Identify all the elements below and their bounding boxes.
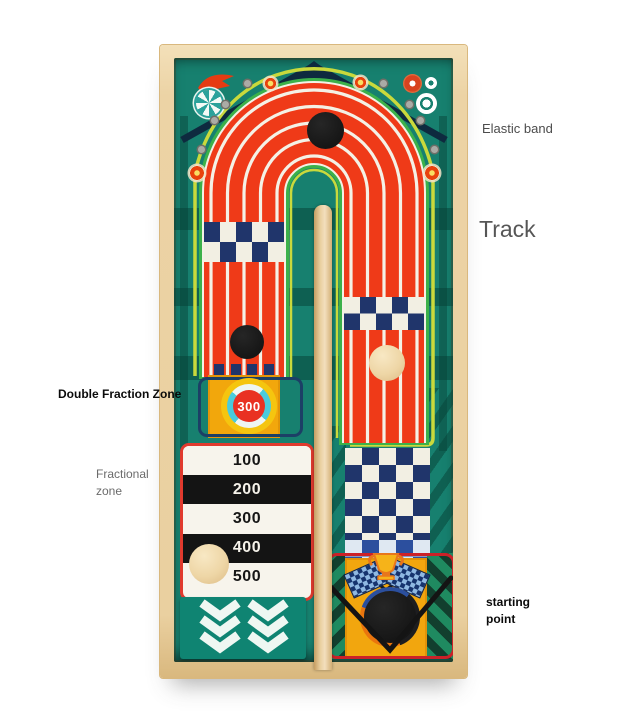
ball-hole	[230, 325, 264, 359]
fraction-row: 200	[183, 475, 311, 504]
peg-dot	[222, 101, 229, 108]
peg-dot	[431, 146, 438, 153]
fraction-value: 300	[233, 510, 261, 528]
label-text: starting	[486, 594, 530, 611]
label-text: Fractional	[96, 466, 149, 483]
peg-dot	[198, 146, 205, 153]
candy-icon	[424, 165, 440, 181]
track-checker-band	[204, 222, 284, 262]
wood-hole	[369, 345, 405, 381]
flower-icon	[403, 74, 422, 93]
peg-dot	[417, 117, 424, 124]
candy-icon	[264, 77, 277, 90]
label-starting-point: starting point	[486, 594, 530, 628]
label-double-fraction-zone: Double Fraction Zone	[58, 386, 181, 403]
fraction-value: 500	[233, 568, 261, 586]
chevron-down-icon	[180, 597, 306, 659]
label-elastic-band: Elastic band	[482, 121, 553, 136]
peg-dot	[406, 101, 413, 108]
candy-icon	[354, 76, 367, 89]
label-fractional-zone: Fractional zone	[96, 466, 149, 500]
target-value-text: 300	[237, 399, 260, 414]
product-diagram: 300 100 200 300 400 500	[0, 0, 641, 720]
pinwheel-candy-icon	[196, 90, 222, 116]
ball-hole	[307, 112, 344, 149]
chevron-zone	[180, 597, 306, 659]
fraction-row: 300	[183, 504, 311, 533]
target-value: 300	[233, 390, 265, 422]
fractional-zone: 100 200 300 400 500	[180, 443, 314, 601]
fraction-value: 200	[233, 481, 261, 499]
label-text: Elastic band	[482, 121, 553, 136]
wooden-divider	[314, 205, 332, 670]
peg-dot	[380, 80, 387, 87]
fraction-row: 100	[183, 446, 311, 475]
label-text: Track	[479, 216, 536, 242]
elastic-band-v	[324, 558, 453, 662]
wooden-game-board: 300 100 200 300 400 500	[160, 45, 467, 678]
label-text: Double Fraction Zone	[58, 387, 181, 401]
candy-icon	[189, 165, 205, 181]
label-text: zone	[96, 483, 149, 500]
label-text: point	[486, 611, 530, 628]
ring-dot-icon	[425, 77, 437, 89]
wood-hole	[189, 544, 229, 584]
track-checker-band	[344, 297, 424, 330]
double-ring-icon	[416, 93, 437, 114]
label-track: Track	[479, 216, 536, 243]
peg-dot	[244, 80, 251, 87]
checkerboard	[345, 448, 430, 540]
fraction-value: 400	[233, 539, 261, 557]
fraction-value: 100	[233, 452, 261, 470]
peg-dot	[211, 117, 218, 124]
